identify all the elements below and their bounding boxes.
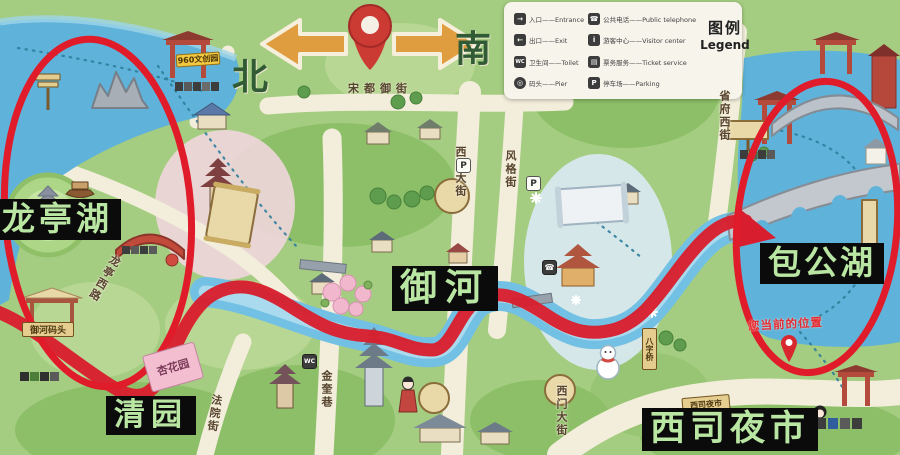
label-longtinghu: 龙亭湖 [0,199,121,240]
street-fengge-jie: 风格街 [502,150,518,189]
label-baogonghu: 包公湖 [760,243,884,284]
label-xisi-yeshi: 西司夜市 [642,408,818,451]
ice-park-scroll [555,182,630,229]
legend-item-visitor-center: i 游客中心——Visitor center [588,31,696,50]
snowman [597,346,619,380]
facility-icon-strip-1 [175,82,219,91]
compass-south-label: 南 [455,20,491,72]
parking-icon: P [588,77,600,89]
legend-item-exit: ← 出口——Exit [514,31,584,50]
legend-item-toilet: WC 卫生间——Toilet [514,52,584,71]
kaifeng-tourist-map: 北 南 → 入口——Entrance ← 出口——Exit WC 卫生间——To… [0,0,900,455]
exit-icon: ← [514,34,526,46]
street-songdu-yujie: 宋都御街 [348,80,412,96]
legend-item-public-telephone: ☎ 公共电话——Public telephone [588,9,696,28]
legend-item-parking: P 停车场——Parking [588,74,696,93]
facility-icon-strip-5 [20,372,59,381]
parking-icon-map-1: P [456,158,471,173]
north-house-2 [417,119,443,139]
legend-item-pier: ◎ 码头——Pier [514,74,584,93]
sign-baziqiao: 八字桥 [642,328,657,370]
sign-yuhe-matou: 御河码头 [22,322,74,337]
label-yuhe: 御河 [392,266,498,311]
red-lantern [166,254,178,266]
lady-figure [399,377,417,413]
street-shengfu-xijie: 省府西街 [716,90,732,142]
legend-item-ticket-service: ▤ 票务服务——Ticket service [588,52,696,71]
compass [262,5,478,70]
legend-column-2: ☎ 公共电话——Public telephone i 游客中心——Visitor… [588,9,696,93]
red-tower-right-edge [868,44,900,108]
street-ximen-dajie-south: 西门大街 [553,385,569,437]
visitor-center-icon: i [588,34,600,46]
telephone-icon-map: ☎ [542,260,557,275]
map-artwork [0,0,900,455]
legend-title: 图例 Legend [700,9,750,93]
public-telephone-icon: ☎ [588,13,600,25]
compass-north-label: 北 [232,48,268,100]
pier-icon: ◎ [514,77,526,89]
entrance-icon: → [514,13,526,25]
toilet-icon-map: WC [302,354,317,369]
toilet-icon: WC [514,56,526,68]
legend-column-1: → 入口——Entrance ← 出口——Exit WC 卫生间——Toilet… [514,9,584,93]
label-qingyuan: 清园 [106,396,196,435]
round-badge-3 [419,383,449,413]
legend-panel: → 入口——Entrance ← 出口——Exit WC 卫生间——Toilet… [504,2,742,99]
facility-icon-strip-4 [122,246,157,254]
street-jinkui-xiang: 金奎巷 [318,370,334,409]
parking-icon-map-2: P [526,176,541,191]
ticket-service-icon: ▤ [588,56,600,68]
current-location-pin-icon [778,333,800,363]
legend-item-entrance: → 入口——Entrance [514,9,584,28]
